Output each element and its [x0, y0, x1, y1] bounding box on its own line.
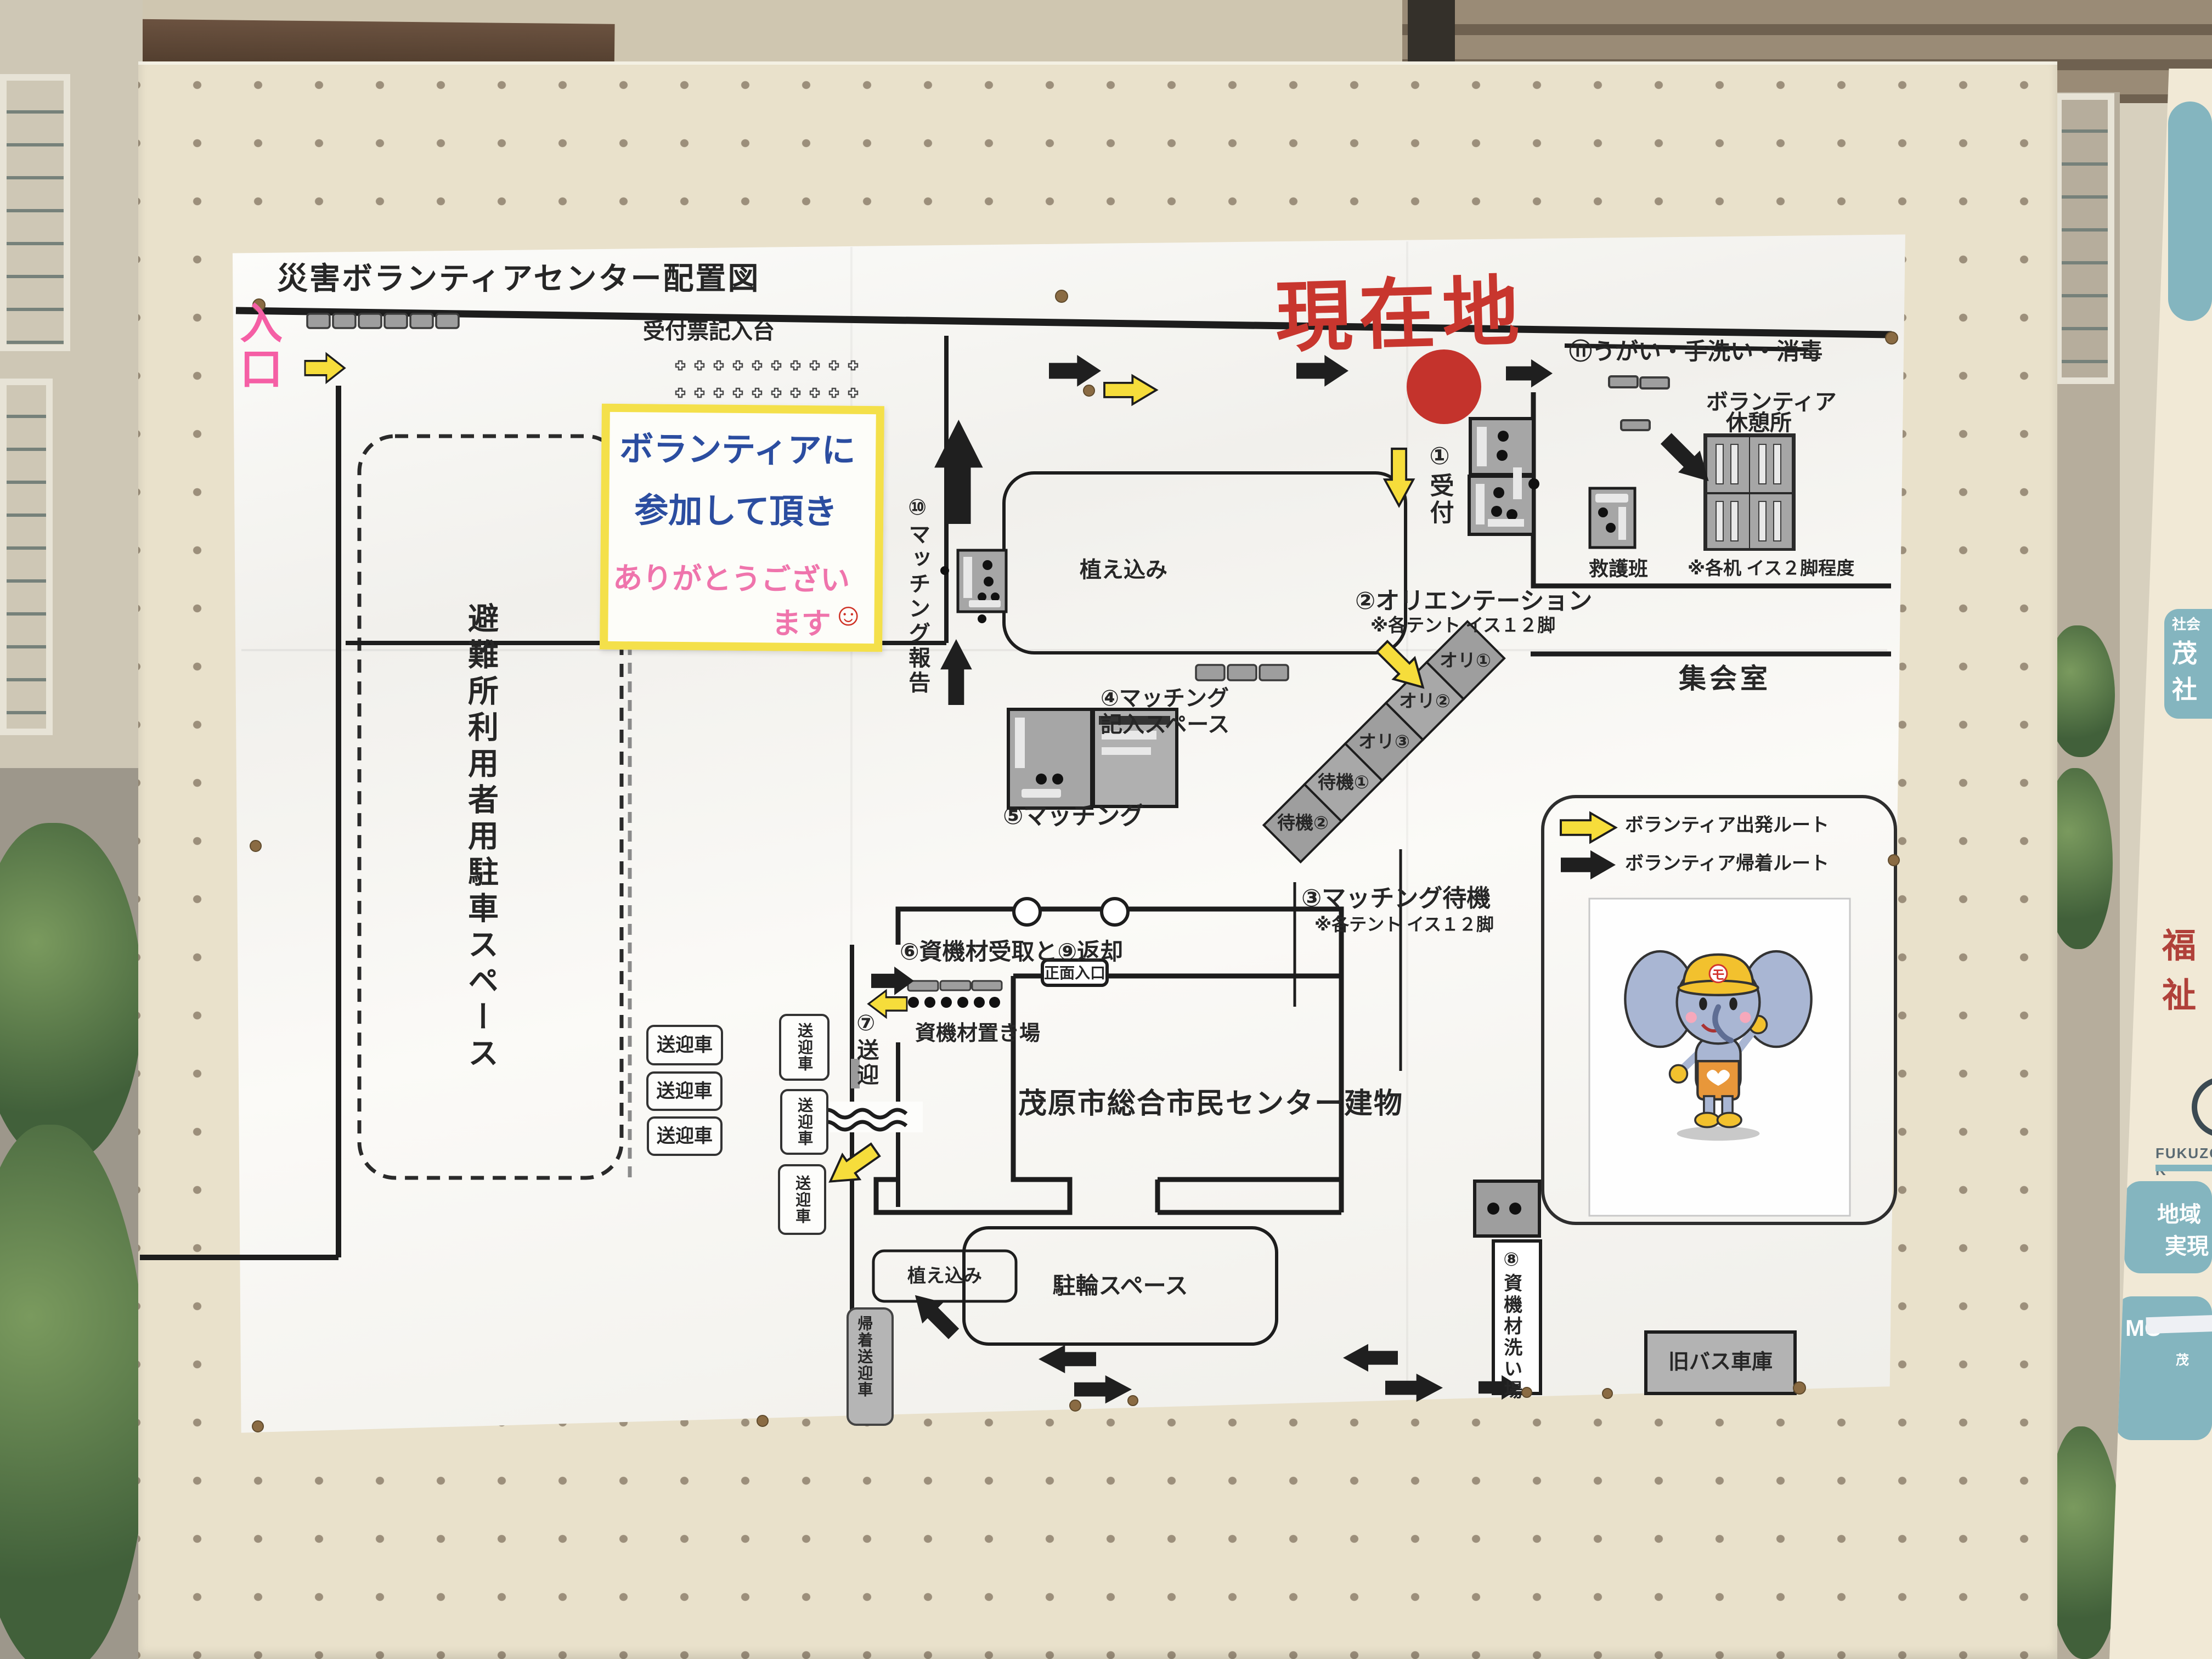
station-3-note: ※各テント イス１２脚 [1314, 915, 1494, 934]
station-11-label: ⑪うがい・手洗い・消毒 [1569, 339, 1822, 364]
tape-strip [2146, 1315, 2212, 1334]
station-4-label-line1: ④マッチング [1101, 687, 1229, 710]
building-label: 茂原市総合市民センター建物 [1018, 1088, 1403, 1119]
side-sign-region1: 地域 [2157, 1197, 2212, 1228]
shuttle-box: 送迎車 [779, 1014, 830, 1081]
side-sign-mo-block: MO 茂 [2115, 1296, 2212, 1440]
rest-area-note: ※各机 イス２脚程度 [1688, 558, 1854, 578]
first-aid-label: 救護班 [1589, 558, 1648, 580]
side-sign-circle-logo [2192, 1077, 2212, 1137]
note-line-2: 参加して頂き [634, 482, 838, 533]
photo-of-bulletin-board: モ 災害ボランティアセンター配置図 入口 受付票記入台 現在地 ⑪うがい・手洗い… [0, 0, 2212, 1659]
shuttle-box: 送迎車 [780, 1089, 828, 1155]
smiley-icon: ☺ [832, 596, 865, 633]
side-sign-welfare: 福祉 [2162, 918, 2212, 1017]
current-location-label: 現在地 [1274, 270, 1527, 359]
side-sign-pill [2168, 101, 2212, 321]
side-sign-org-big1: 茂 [2172, 634, 2212, 670]
tent-label: オリ② [1399, 691, 1451, 711]
old-bus-garage-label: 旧バス車庫 [1646, 1332, 1795, 1393]
station-1-label: ①受付 [1426, 442, 1453, 527]
side-sign-region-block: 地域 実現 [2124, 1181, 2212, 1273]
parking-label: 避難所利用者用駐車スペース [464, 602, 497, 1073]
main-entrance-label: 正面入口 [1044, 963, 1105, 983]
station-2-label: ②オリエンテーション [1355, 588, 1592, 614]
shuttle-box: 送迎車 [646, 1071, 723, 1111]
station-7-label: ⑦送迎 [854, 1011, 877, 1088]
reception-writing-desk-label: 受付票記入台 [643, 320, 775, 343]
note-line-4: ます [771, 599, 831, 642]
tent-label: オリ① [1440, 651, 1491, 670]
station-2-note: ※各テント イス１２脚 [1370, 616, 1555, 635]
station-3-label: ③マッチング待機 [1301, 885, 1491, 912]
station-10-label: ⑩マッチング報告 [905, 495, 929, 696]
note-line-3: ありがとうござい [613, 554, 850, 599]
rest-area-label-line2: 休憩所 [1726, 411, 1792, 435]
map-linework: モ [0, 0, 2212, 1659]
equip-storage-label: 資機材置き場 [915, 1023, 1040, 1045]
station-6-label: ⑥資機材受取と⑨返却 [900, 939, 1123, 964]
meeting-room-label: 集会室 [1679, 664, 1771, 693]
planting-top-label: 植え込み [1080, 558, 1167, 582]
legend-depart-label: ボランティア出発ルート [1625, 815, 1829, 836]
bike-space-label: 駐輪スペース [964, 1228, 1277, 1344]
side-sign-org-block: 社会 茂 社 [2164, 609, 2212, 719]
side-sign-mo-small: 茂 [2176, 1349, 2189, 1368]
entrance-label: 入口 [235, 301, 281, 392]
return-shuttle-label: 帰着送迎車 [856, 1316, 872, 1398]
station-8-label: ⑧資機材洗い場 [1501, 1249, 1521, 1402]
side-sign-org-big2: 社 [2172, 670, 2212, 706]
tent-label: オリ③ [1358, 732, 1410, 752]
thank-you-note: ボランティアに 参加して頂き ありがとうござい ます ☺ [600, 404, 884, 652]
mascot-helmet-badge: モ [1712, 968, 1725, 983]
side-sign-romaji: FUKUZO-K [2155, 1145, 2212, 1179]
station-4-label-line2: 記入スペース [1101, 713, 1229, 737]
tent-label: 待機② [1277, 813, 1329, 833]
note-line-1: ボランティアに [619, 421, 856, 472]
side-sign-region2: 実現 [2157, 1228, 2212, 1260]
tent-label: 待機① [1318, 772, 1369, 792]
shuttle-box: 送迎車 [778, 1164, 826, 1235]
side-sign-underline [2155, 1165, 2212, 1171]
shuttle-box: 送迎車 [646, 1025, 723, 1065]
legend-return-label: ボランティア帰着ルート [1625, 854, 1829, 874]
side-sign-org-small: 社会 [2172, 613, 2212, 634]
shuttle-box: 送迎車 [647, 1116, 723, 1156]
map-title: 災害ボランティアセンター配置図 [277, 262, 760, 295]
station-5-label: ⑤マッチング [1003, 803, 1144, 830]
